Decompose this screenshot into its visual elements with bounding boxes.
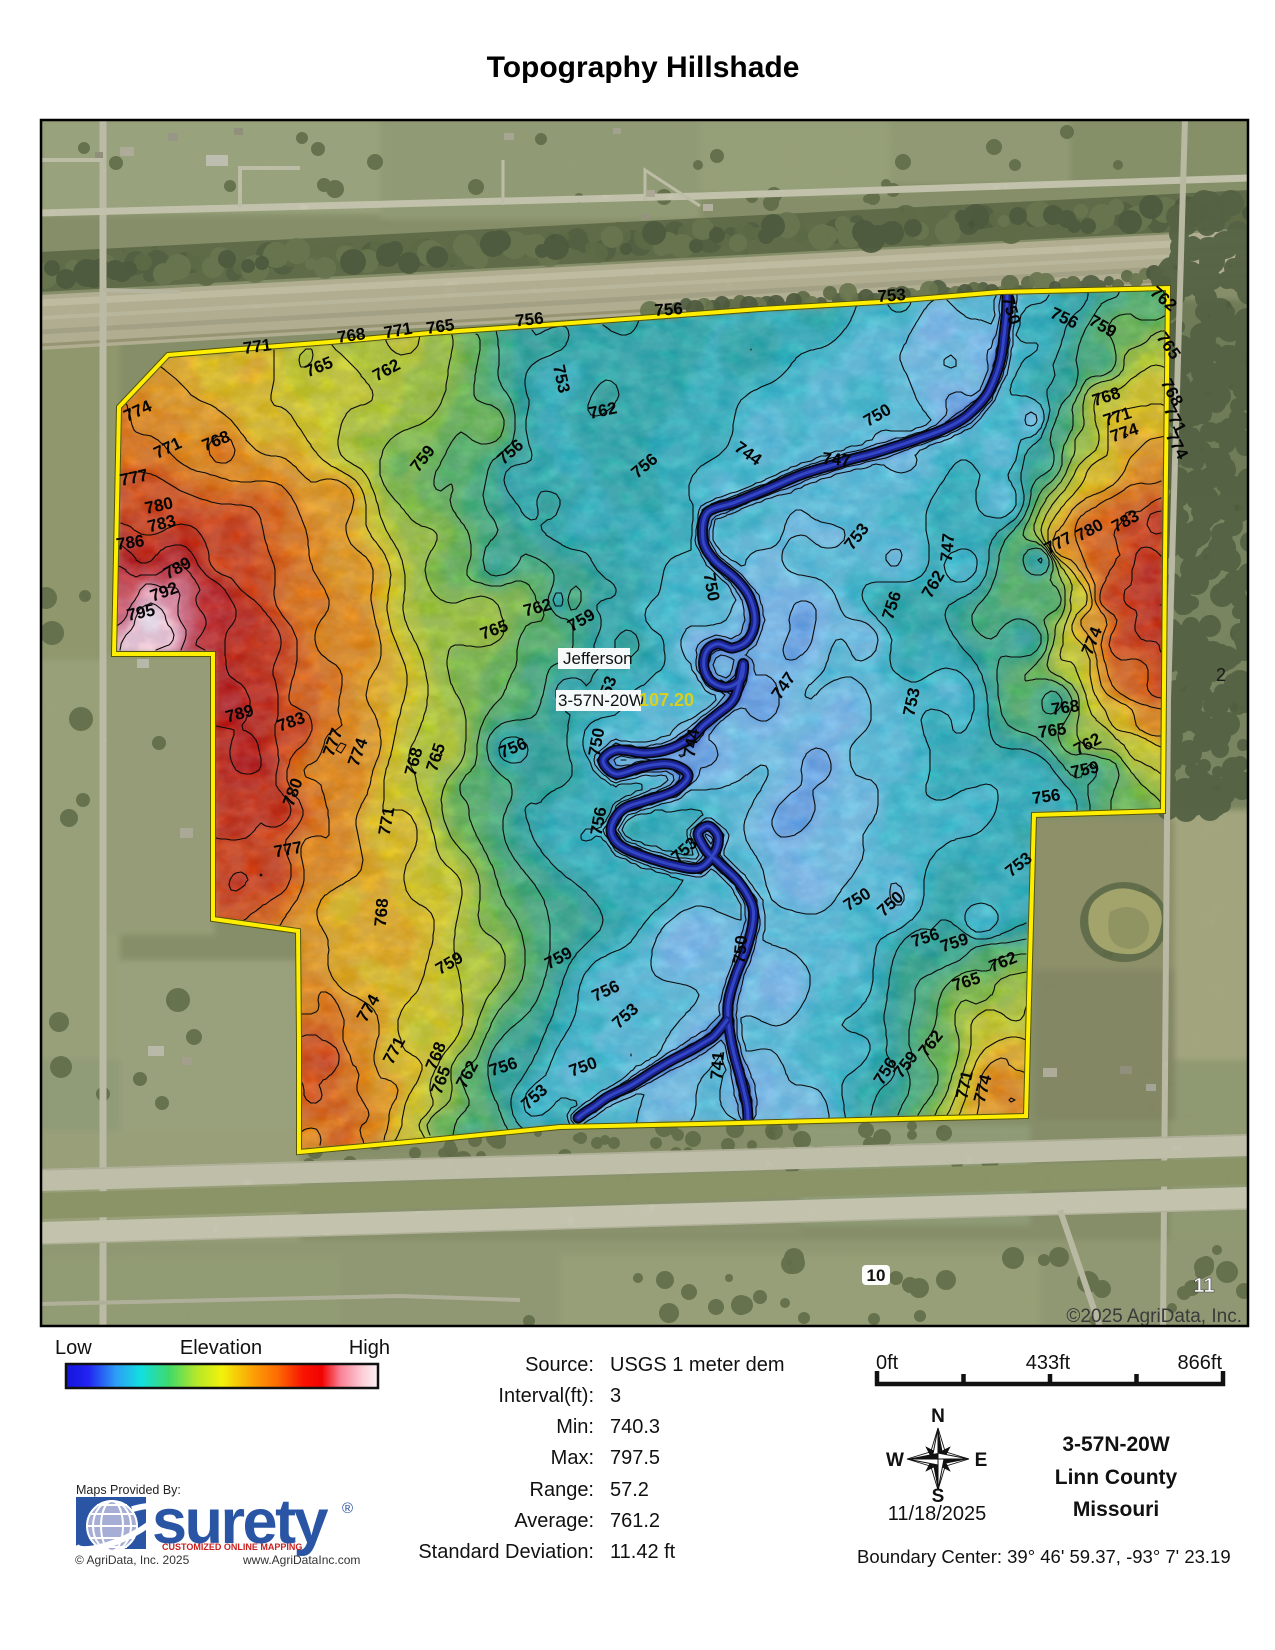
svg-text:Interval(ft):: Interval(ft): [498,1385,594,1407]
svg-text:USGS 1 meter dem: USGS 1 meter dem [610,1354,785,1376]
svg-text:756: 756 [1031,785,1062,808]
svg-text:0ft: 0ft [876,1352,899,1374]
svg-text:CUSTOMIZED ONLINE MAPPING: CUSTOMIZED ONLINE MAPPING [162,1542,302,1552]
svg-text:768: 768 [371,898,392,928]
svg-text:756: 756 [654,299,684,320]
svg-text:Linn County: Linn County [1055,1466,1178,1489]
svg-text:768: 768 [1050,696,1081,719]
svg-text:756: 756 [514,309,544,331]
svg-text:High: High [349,1337,390,1359]
svg-text:Average:: Average: [514,1510,594,1532]
svg-text:3: 3 [610,1385,621,1407]
svg-text:Max:: Max: [551,1447,594,1469]
svg-text:Topography Hillshade: Topography Hillshade [487,51,800,84]
svg-text:740.3: 740.3 [610,1416,660,1438]
svg-text:3-57N-20W: 3-57N-20W [1062,1433,1170,1456]
svg-text:®: ® [342,1500,353,1517]
svg-text:2: 2 [1216,665,1226,685]
svg-text:797.5: 797.5 [610,1447,660,1469]
svg-text:Standard Deviation:: Standard Deviation: [418,1541,594,1563]
svg-text:Source:: Source: [525,1354,594,1376]
svg-text:761.2: 761.2 [610,1510,660,1532]
svg-text:753: 753 [877,285,907,306]
svg-text:Jefferson: Jefferson [563,649,633,668]
svg-text:Missouri: Missouri [1073,1498,1159,1521]
svg-text:www.AgriDataInc.com: www.AgriDataInc.com [242,1553,360,1567]
svg-text:765: 765 [425,315,456,338]
svg-text:Elevation: Elevation [180,1337,262,1359]
svg-text:11/18/2025: 11/18/2025 [888,1503,987,1525]
svg-text:Min:: Min: [556,1416,594,1438]
svg-text:786: 786 [115,531,146,554]
svg-text:747: 747 [937,533,958,563]
svg-text:768: 768 [336,324,367,347]
svg-text:11.42 ft: 11.42 ft [610,1541,676,1563]
svg-text:866ft: 866ft [1178,1352,1223,1374]
svg-text:750: 750 [730,935,751,965]
svg-text:© AgriData, Inc. 2025: © AgriData, Inc. 2025 [75,1553,190,1567]
svg-text:Boundary Center: 39° 46' 59.37: Boundary Center: 39° 46' 59.37, -93° 7' … [857,1546,1231,1567]
svg-text:N: N [931,1406,945,1427]
svg-text:Range:: Range: [530,1479,595,1501]
svg-text:433ft: 433ft [1026,1352,1071,1374]
svg-text:765: 765 [1037,719,1068,742]
svg-text:3-57N-20W: 3-57N-20W [558,691,645,710]
svg-text:Low: Low [55,1337,92,1359]
svg-text:771: 771 [242,335,273,358]
svg-text:11: 11 [1193,1275,1214,1297]
svg-text:747: 747 [822,449,852,470]
svg-text:E: E [975,1450,988,1471]
svg-text:10: 10 [867,1266,886,1285]
svg-text:©2025 AgriData, Inc.: ©2025 AgriData, Inc. [1066,1306,1242,1327]
svg-text:741: 741 [707,1051,728,1081]
svg-text:W: W [886,1450,904,1471]
svg-text:57.2: 57.2 [610,1479,649,1501]
svg-text:107.20: 107.20 [639,690,694,710]
